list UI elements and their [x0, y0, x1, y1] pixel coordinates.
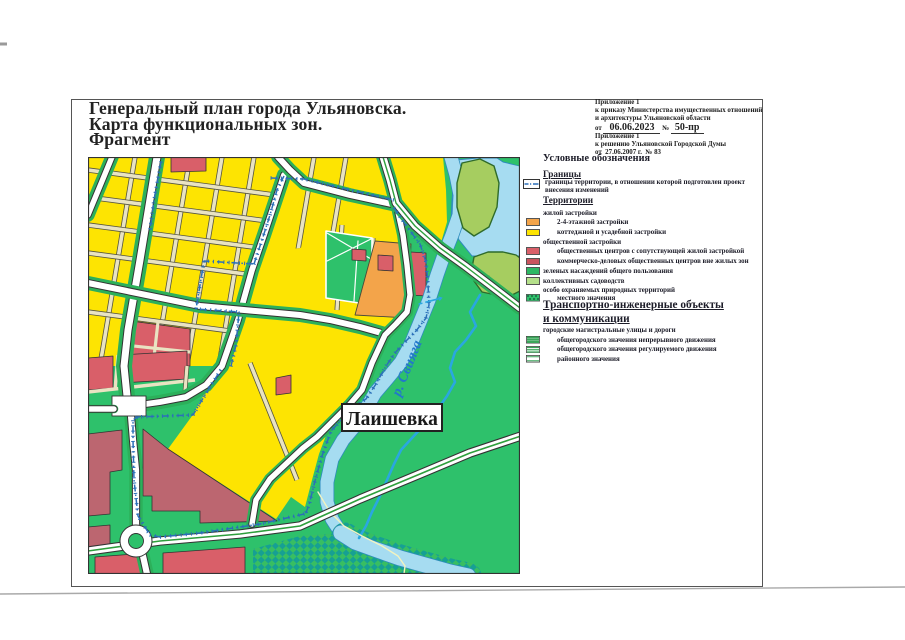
- svg-text:Лаишевка: Лаишевка: [346, 409, 438, 430]
